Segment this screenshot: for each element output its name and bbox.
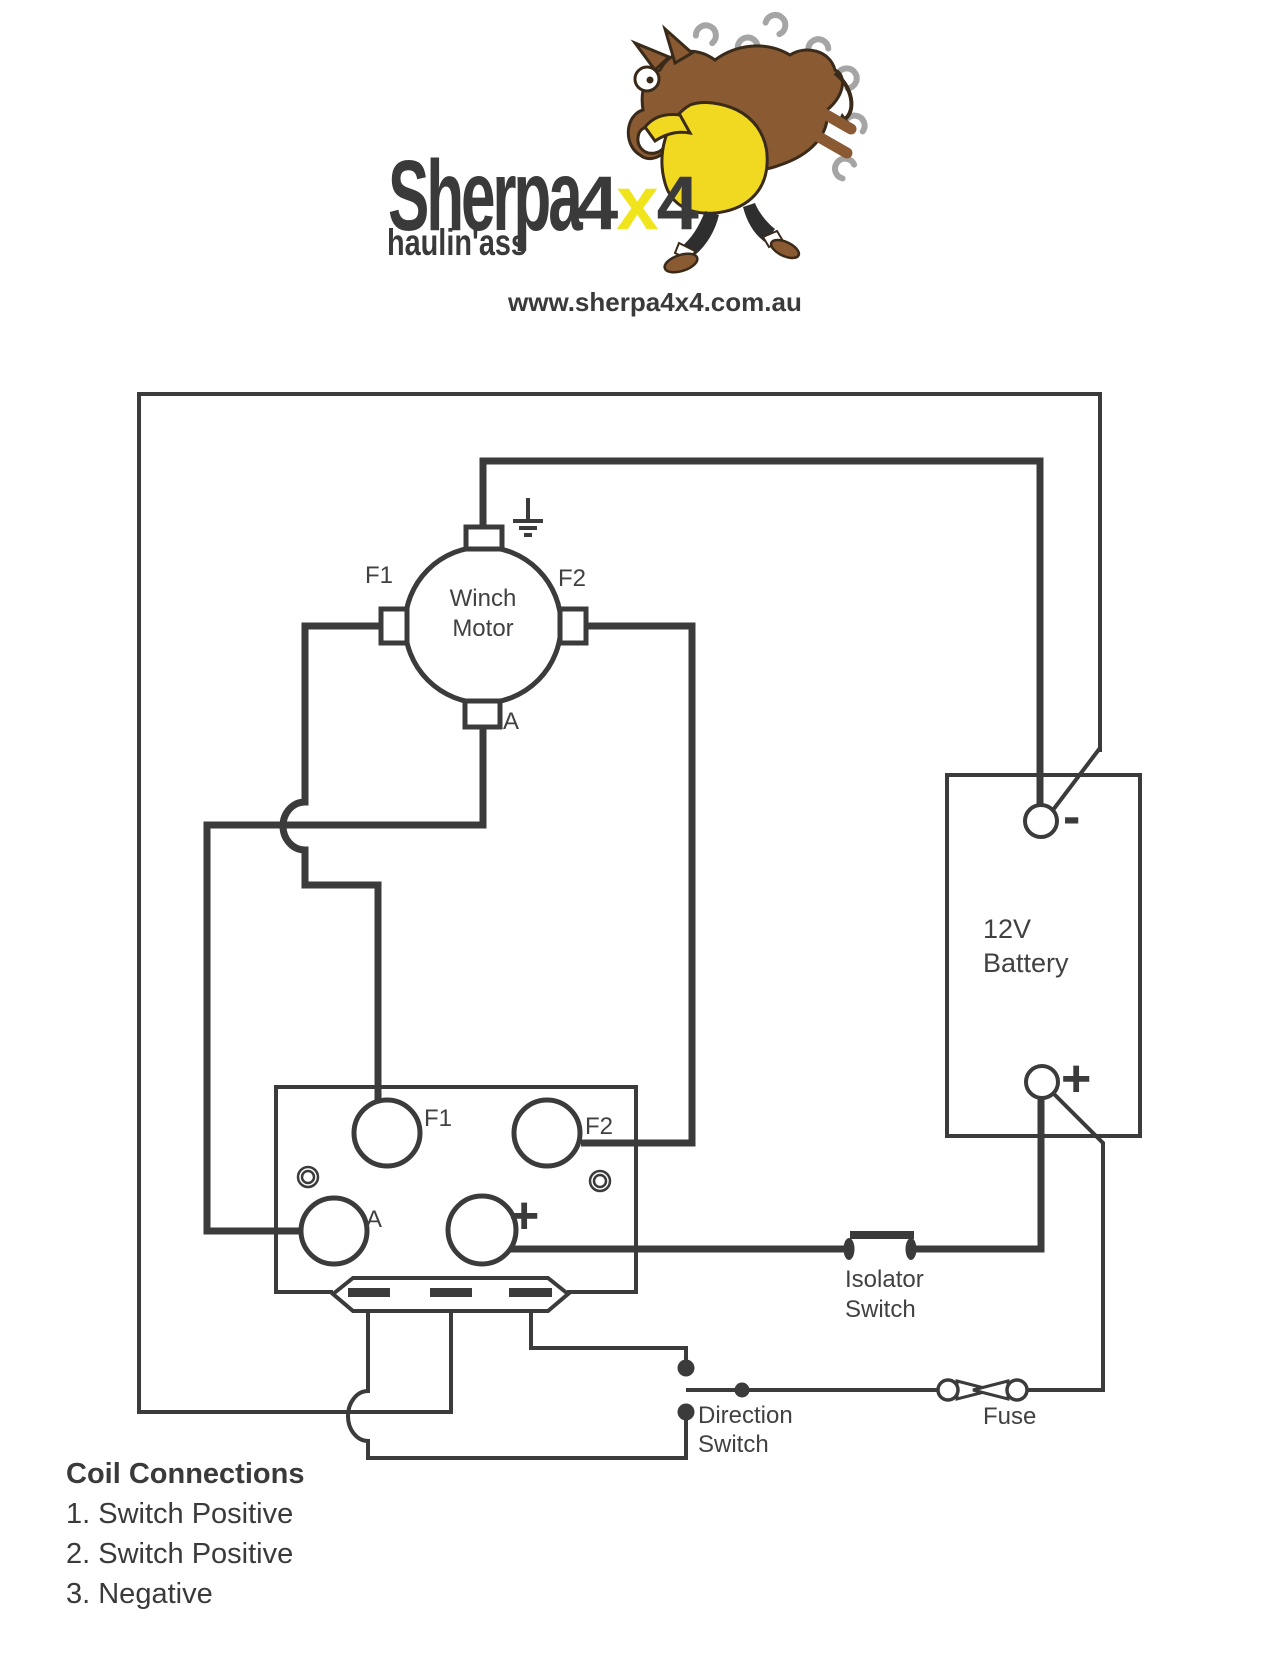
battery-minus-sign: - [1063, 791, 1080, 843]
direction-switch-label: Direction Switch [698, 1401, 793, 1459]
isolator-switch-label: Isolator Switch [845, 1265, 924, 1325]
wire-motor-f1-to-solenoid-f1 [283, 626, 384, 1102]
isolator-switch [844, 1231, 917, 1260]
battery-label: 12V Battery [983, 912, 1069, 980]
coil-connection-item: 1. Switch Positive [66, 1494, 304, 1534]
solenoid-terminal-a [301, 1198, 367, 1264]
solenoid-a-label: A [366, 1205, 382, 1234]
coil-pin-1 [348, 1288, 390, 1297]
solenoid-f2-label: F2 [585, 1112, 613, 1141]
coil-connections-legend: Coil Connections 1. Switch Positive 2. S… [66, 1454, 304, 1614]
wiring-diagram [0, 0, 1273, 1655]
motor-terminal-f2 [560, 609, 586, 643]
coil-connection-item: 3. Negative [66, 1574, 304, 1614]
direction-common-dot [735, 1383, 750, 1398]
solenoid-f1-label: F1 [424, 1104, 452, 1133]
motor-a-label: A [503, 707, 519, 736]
direction-contact-upper [678, 1360, 695, 1377]
solenoid-terminal-f1 [354, 1100, 420, 1166]
wire-coil-pin1-to-switch-lower [348, 1295, 686, 1458]
wire-motor-f2-to-solenoid-f2 [581, 626, 692, 1143]
solenoid-terminal-f2 [514, 1100, 580, 1166]
fuse-label: Fuse [983, 1402, 1036, 1431]
winch-motor-label: Winch Motor [428, 584, 538, 644]
logo-4x4-text: 4x4 [576, 166, 697, 242]
solenoid-coil-pins [348, 1288, 552, 1297]
coil-connections-title: Coil Connections [66, 1454, 304, 1494]
website-url: www.sherpa4x4.com.au [508, 287, 802, 318]
isolator-contact-right [906, 1238, 917, 1260]
motor-f1-label: F1 [365, 561, 393, 590]
coil-connection-item: 2. Switch Positive [66, 1534, 304, 1574]
fuse-icon [938, 1380, 1027, 1400]
coil-pin-3 [509, 1288, 552, 1297]
logo-4-second: 4 [657, 161, 697, 246]
logo-x-yellow: x [616, 161, 656, 246]
logo-4-first: 4 [576, 161, 616, 246]
motor-terminal-f1 [381, 609, 407, 643]
battery-minus-terminal [1025, 805, 1057, 837]
solenoid-terminal-plus [448, 1196, 516, 1264]
logo-tagline: haulin'ass [387, 224, 527, 261]
direction-contact-lower [678, 1404, 695, 1421]
battery-plus-sign: + [1061, 1053, 1091, 1105]
wire-motor-a-to-solenoid-a [207, 725, 483, 1231]
motor-terminal-a [465, 701, 500, 727]
motor-terminal-top [466, 527, 502, 549]
isolator-contact-left [844, 1238, 855, 1260]
ground-icon [513, 498, 543, 535]
battery-plus-terminal [1026, 1066, 1058, 1098]
motor-f2-label: F2 [558, 564, 586, 593]
isolator-blade [850, 1231, 914, 1239]
coil-pin-2 [430, 1288, 472, 1297]
solenoid-plus-sign: + [509, 1190, 539, 1242]
